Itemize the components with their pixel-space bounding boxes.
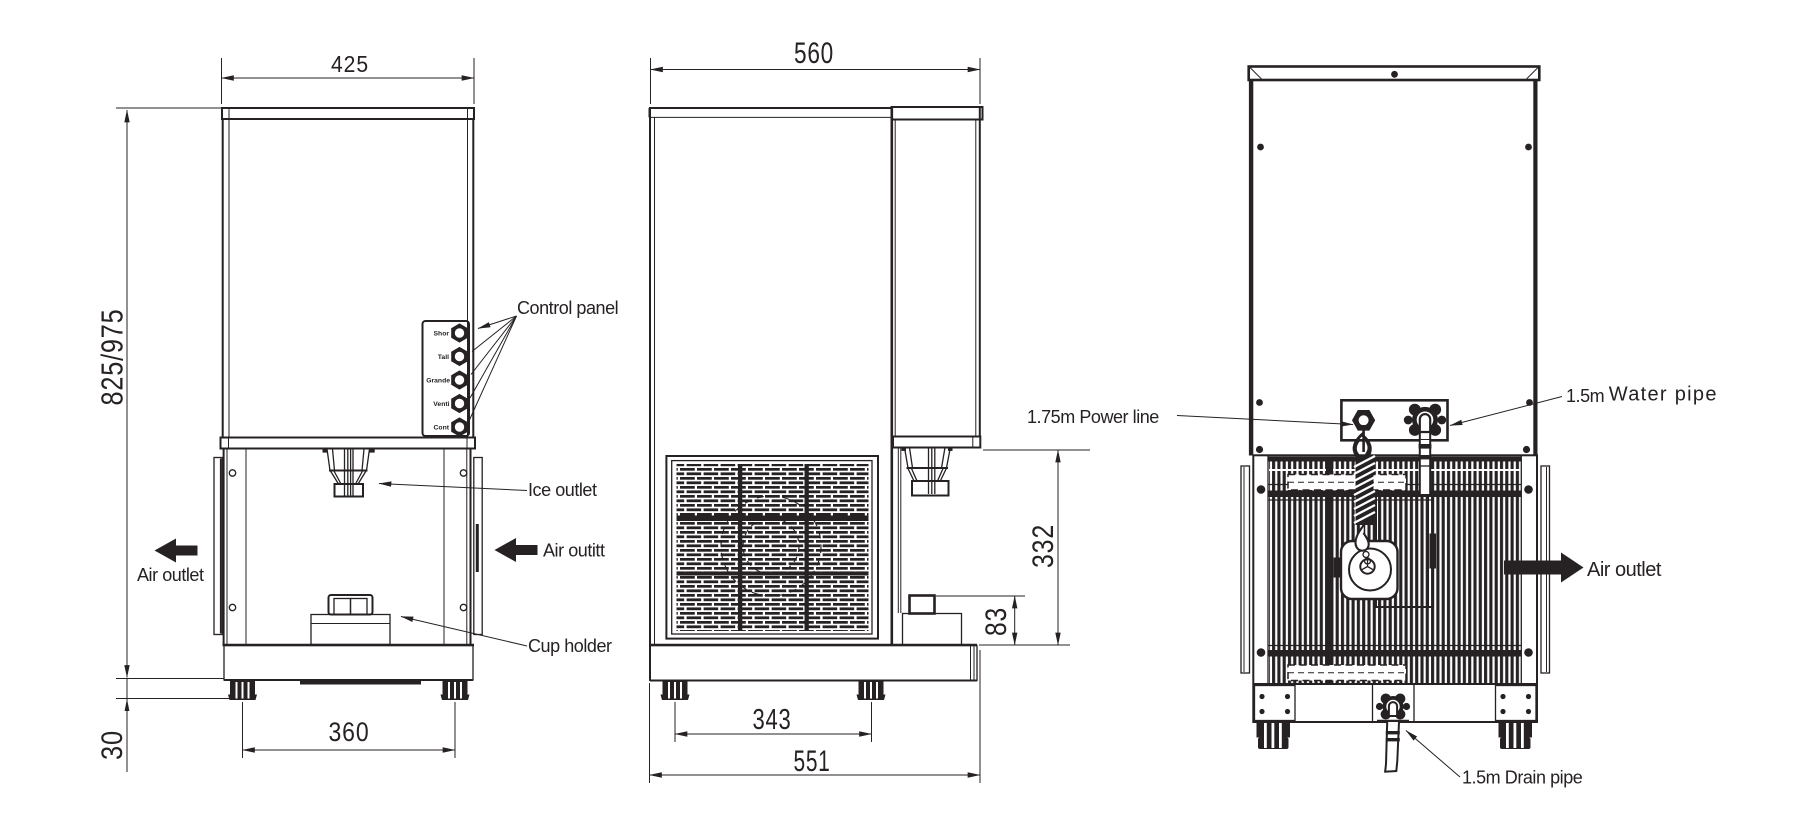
svg-text:Grande: Grande — [426, 378, 450, 385]
svg-text:30: 30 — [96, 730, 129, 760]
svg-text:551: 551 — [794, 745, 831, 778]
svg-text:83: 83 — [980, 607, 1013, 636]
svg-text:Air outlet: Air outlet — [137, 565, 204, 585]
svg-text:1.75m Power line: 1.75m Power line — [1027, 407, 1159, 427]
svg-text:360: 360 — [329, 717, 370, 747]
svg-text:Air outlet: Air outlet — [1587, 559, 1662, 581]
svg-text:425: 425 — [331, 51, 369, 77]
svg-text:560: 560 — [794, 37, 834, 70]
svg-text:1.5m Drain pipe: 1.5m Drain pipe — [1462, 768, 1583, 788]
svg-text:Ice outlet: Ice outlet — [528, 480, 597, 500]
svg-text:Venti: Venti — [433, 401, 449, 408]
svg-text:Control panel: Control panel — [517, 298, 618, 318]
svg-text:343: 343 — [753, 704, 792, 736]
svg-text:Cup holder: Cup holder — [528, 636, 612, 656]
svg-text:332: 332 — [1027, 524, 1060, 568]
svg-text:825/975: 825/975 — [95, 309, 130, 406]
svg-text:1.5m Water pipe: 1.5m Water pipe — [1566, 384, 1718, 407]
svg-text:Shor: Shor — [434, 331, 450, 338]
svg-text:Cont: Cont — [434, 425, 450, 432]
svg-text:Air outitt: Air outitt — [543, 541, 605, 561]
svg-text:Tall: Tall — [438, 354, 449, 361]
